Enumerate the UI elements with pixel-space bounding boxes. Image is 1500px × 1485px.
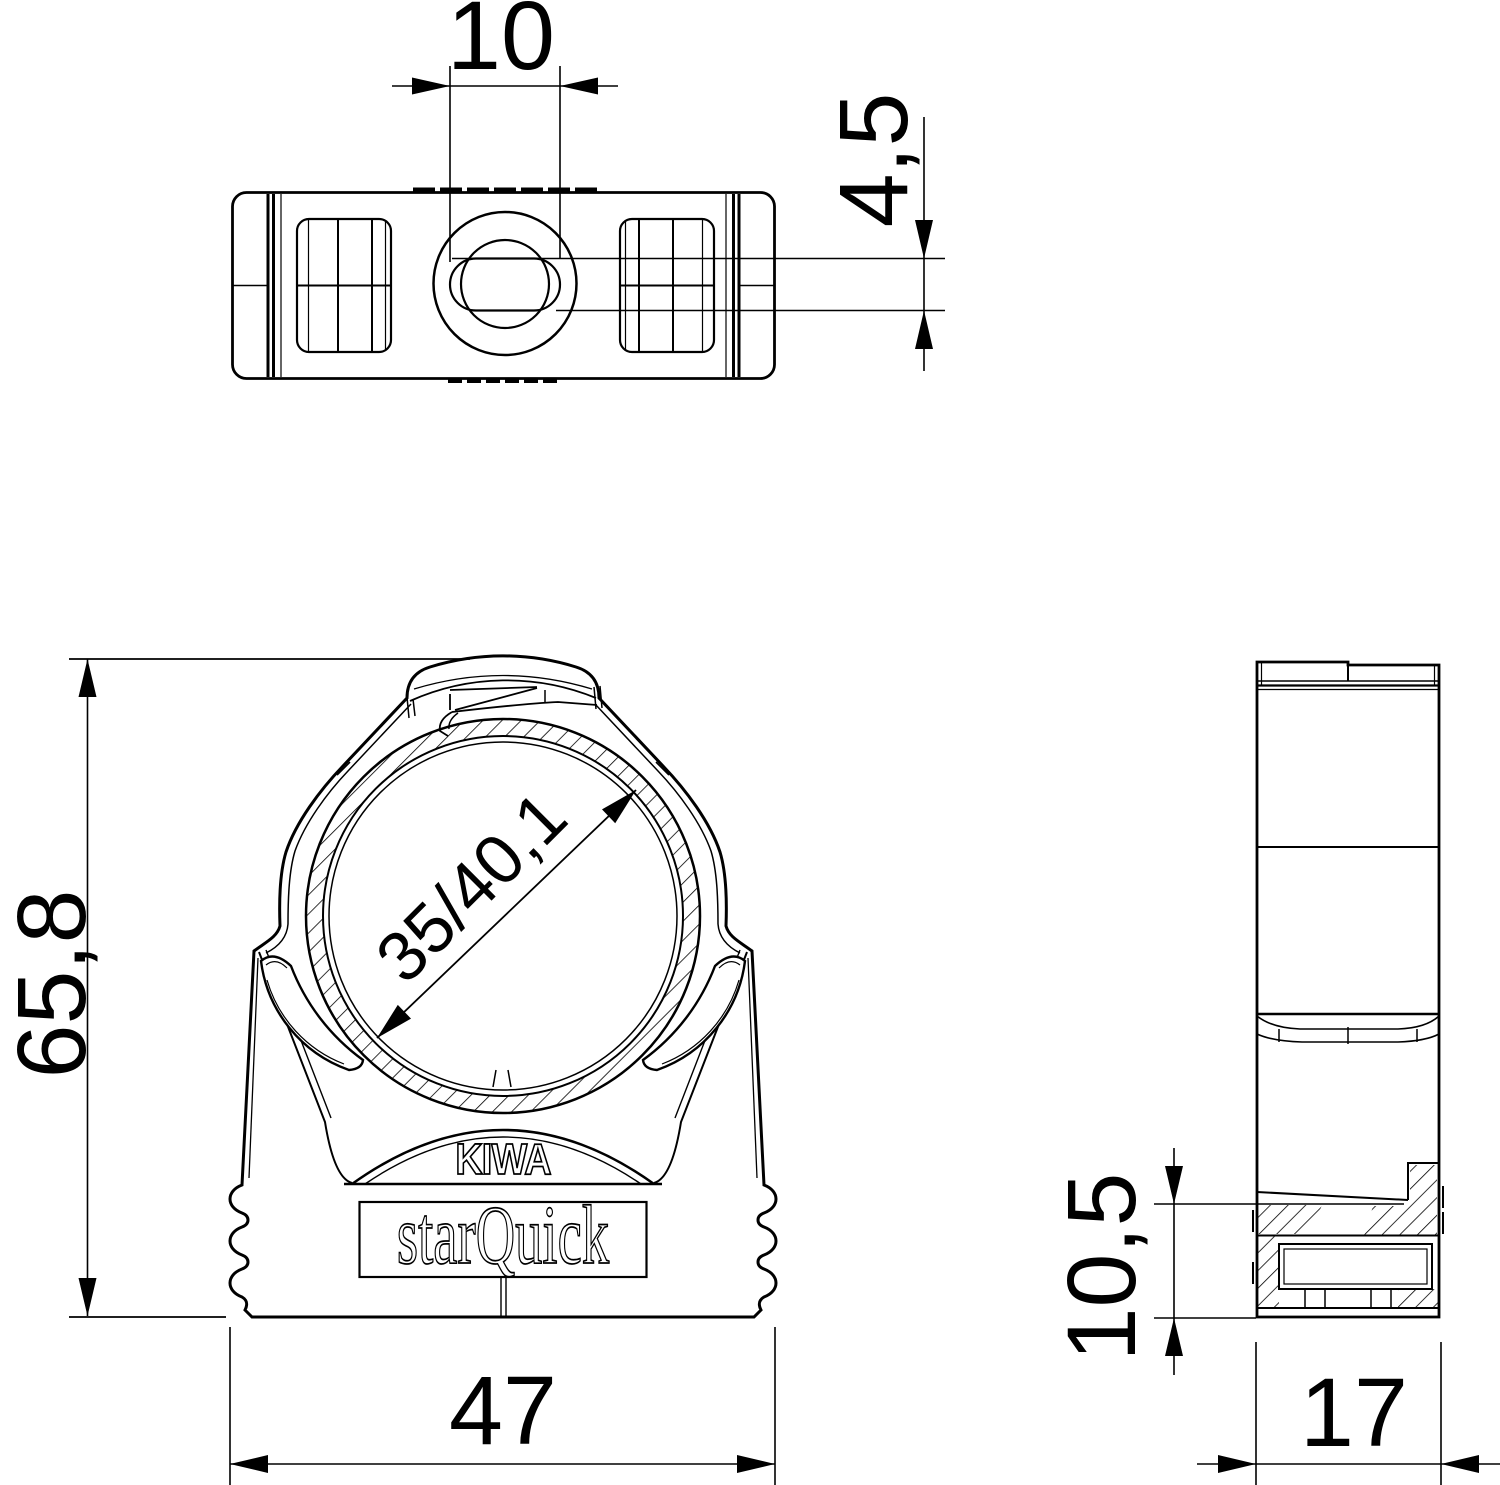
svg-text:65,8: 65,8 — [0, 890, 106, 1079]
svg-text:10: 10 — [447, 0, 555, 90]
svg-text:4,5: 4,5 — [819, 93, 928, 228]
svg-text:10,5: 10,5 — [1047, 1173, 1156, 1362]
svg-text:17: 17 — [1300, 1358, 1408, 1467]
svg-text:47: 47 — [449, 1356, 557, 1465]
svg-text:starQuick: starQuick — [397, 1189, 610, 1281]
svg-text:KIWA: KIWA — [455, 1134, 551, 1183]
